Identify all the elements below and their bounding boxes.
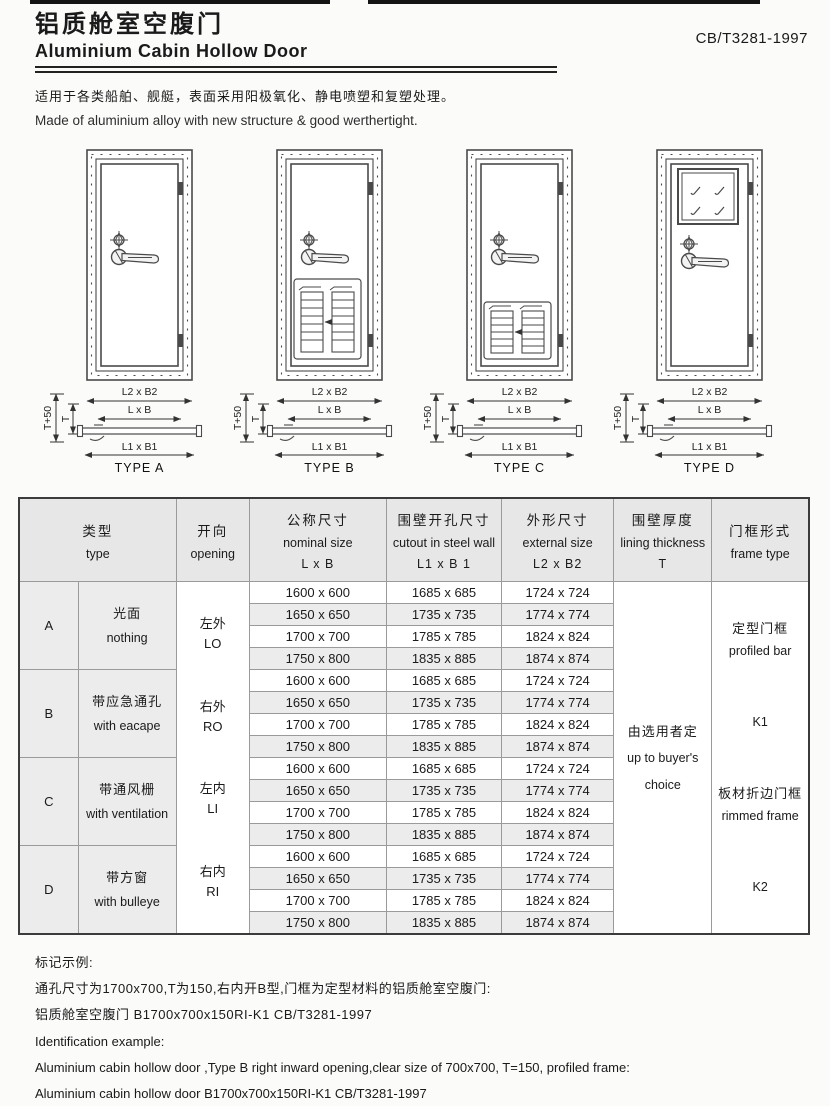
cutout-size: 1835 x 885 [386,912,501,935]
specification-table-wrap: 类型 type 开向 opening 公称尺寸 nominal size L x… [18,497,830,935]
svg-text:T: T [60,416,72,423]
lining-thickness-cell: 由选用者定 up to buyer's choice [614,582,712,935]
svg-text:L x B: L x B [698,404,722,416]
door-outline [277,150,382,380]
dimension-l2b2: L2 x B2 [87,386,192,401]
dimension-l1b1: L1 x B1 [85,441,194,455]
nominal-size: 1600 x 600 [249,582,386,604]
cutout-size: 1685 x 685 [386,846,501,868]
external-size: 1874 x 874 [502,648,614,670]
dimension-lxb: L x B [98,404,181,419]
cutout-size: 1785 x 785 [386,802,501,824]
nominal-size: 1750 x 800 [249,648,386,670]
external-size: 1724 x 724 [502,670,614,692]
example-line1-en: Aluminium cabin hollow door ,Type B righ… [35,1056,830,1080]
dimension-t: T [440,404,459,434]
external-size: 1724 x 724 [502,582,614,604]
hinge-top [558,182,563,195]
external-size: 1874 x 874 [502,824,614,846]
example-line1-zh: 通孔尺寸为1700x700,T为150,右内开B型,门框为定型材料的铝质舱室空腹… [35,977,830,1001]
cutout-size: 1785 x 785 [386,890,501,912]
cutout-size: 1735 x 735 [386,868,501,890]
frame-type-cell: 定型门框profiled bar K1 板材折边门框rimmed frame K… [712,582,809,935]
specification-table: 类型 type 开向 opening 公称尺寸 nominal size L x… [18,497,810,935]
cutout-size: 1735 x 735 [386,780,501,802]
identification-example: 标记示例: 通孔尺寸为1700x700,T为150,右内开B型,门框为定型材料的… [35,951,830,1105]
type-letter-b: B [19,670,78,758]
door-outline [467,150,572,380]
type-desc-b: 带应急通孔with eacape [78,670,176,758]
external-size: 1774 x 774 [502,604,614,626]
dimension-l2b2: L2 x B2 [467,386,572,401]
example-heading-zh: 标记示例: [35,951,830,975]
nominal-size: 1700 x 700 [249,890,386,912]
external-size: 1724 x 724 [502,846,614,868]
dimension-t: T [630,404,649,434]
svg-text:T+50: T+50 [612,406,624,430]
dimension-t: T [60,404,79,434]
svg-text:T+50: T+50 [232,406,244,430]
svg-text:L x B: L x B [318,404,342,416]
figure-label: TYPE A [115,461,165,475]
sill-cross-section [78,425,202,440]
page-header: 铝质舱室空腹门 Aluminium Cabin Hollow Door CB/T… [0,0,830,128]
door-outline [87,150,192,380]
description-zh: 适用于各类船舶、舰艇，表面采用阳极氧化、静电喷塑和复塑处理。 [35,86,808,105]
figure-label: TYPE D [684,461,735,475]
hinge-top [178,182,183,195]
col-header-frame: 门框形式 frame type [712,498,809,582]
type-desc-a: 光面nothing [78,582,176,670]
external-size: 1774 x 774 [502,780,614,802]
col-header-opening: 开向 opening [176,498,249,582]
cutout-size: 1685 x 685 [386,670,501,692]
nominal-size: 1650 x 650 [249,692,386,714]
page-title-en: Aluminium Cabin Hollow Door [35,41,808,62]
external-size: 1824 x 824 [502,626,614,648]
svg-text:L x B: L x B [508,404,532,416]
dimension-l1b1: L1 x B1 [655,441,764,455]
door-figure-type-b: T+50 T L2 x B2 L x B [232,142,422,477]
hinge-bottom [178,334,183,347]
opening-li: 左内LI [177,779,249,819]
svg-text:T+50: T+50 [42,406,54,430]
type-desc-c: 带通风栅with ventilation [78,758,176,846]
nominal-size: 1700 x 700 [249,626,386,648]
opening-cell: 左外LO 右外RO 左内LI 右内RI [176,582,249,935]
type-desc-d: 带方窗with bulleye [78,846,176,935]
col-header-nominal: 公称尺寸 nominal size L x B [249,498,386,582]
svg-text:L2 x B2: L2 x B2 [692,386,728,398]
cutout-size: 1735 x 735 [386,604,501,626]
col-header-lining: 围壁厚度 lining thickness T [614,498,712,582]
door-figure-type-c: T+50 T L2 x B2 L x B [422,142,612,477]
header-row: 类型 type 开向 opening 公称尺寸 nominal size L x… [19,498,809,582]
dimension-lxb: L x B [288,404,371,419]
cutout-size: 1835 x 885 [386,648,501,670]
type-letter-c: C [19,758,78,846]
external-size: 1874 x 874 [502,912,614,935]
nominal-size: 1650 x 650 [249,868,386,890]
sill-cross-section [648,425,772,440]
nominal-size: 1700 x 700 [249,714,386,736]
dimension-l2b2: L2 x B2 [277,386,382,401]
svg-text:L1 x B1: L1 x B1 [692,441,728,453]
hinge-top [368,182,373,195]
table-row: A 光面nothing 左外LO 右外RO 左内LI 右内RI 1600 x 6… [19,582,809,604]
cutout-size: 1785 x 785 [386,626,501,648]
external-size: 1874 x 874 [502,736,614,758]
cutout-size: 1835 x 885 [386,824,501,846]
sill-cross-section [458,425,582,440]
external-size: 1824 x 824 [502,890,614,912]
cutout-size: 1685 x 685 [386,582,501,604]
frame-k2: K2 [712,876,808,899]
svg-text:T+50: T+50 [422,406,434,430]
opening-ro: 右外RO [177,697,249,737]
nominal-size: 1750 x 800 [249,824,386,846]
external-size: 1774 x 774 [502,692,614,714]
sill-cross-section [268,425,392,440]
col-header-type: 类型 type [19,498,176,582]
cutout-size: 1735 x 735 [386,692,501,714]
type-letter-a: A [19,582,78,670]
external-size: 1824 x 824 [502,802,614,824]
external-size: 1824 x 824 [502,714,614,736]
hinge-bottom [748,334,753,347]
dimension-lxb: L x B [668,404,751,419]
svg-text:L1 x B1: L1 x B1 [502,441,538,453]
hinge-bottom [368,334,373,347]
dimension-lxb: L x B [478,404,561,419]
frame-k2-desc: 板材折边门框rimmed frame [712,782,808,828]
col-header-cutout: 围壁开孔尺寸 cutout in steel wall L1 x B 1 [386,498,501,582]
dimension-l2b2: L2 x B2 [657,386,762,401]
svg-text:L2 x B2: L2 x B2 [312,386,348,398]
svg-text:L2 x B2: L2 x B2 [122,386,158,398]
opening-ri: 右内RI [177,862,249,902]
figure-label: TYPE B [304,461,354,475]
cutout-size: 1835 x 885 [386,736,501,758]
example-line2-zh: 铝质舱室空腹门 B1700x700x150RI-K1 CB/T3281-1997 [35,1003,830,1027]
dimension-t: T [250,404,269,434]
standard-number: CB/T3281-1997 [696,30,808,47]
title-underline [35,66,557,73]
nominal-size: 1600 x 600 [249,758,386,780]
svg-text:T: T [440,416,452,423]
door-figure-type-d: T+50 T L2 x B2 L x B [612,142,802,477]
example-line2-en: Aluminium cabin hollow door B1700x700x15… [35,1082,830,1106]
external-size: 1774 x 774 [502,868,614,890]
nominal-size: 1650 x 650 [249,780,386,802]
svg-text:T: T [630,416,642,423]
svg-text:L x B: L x B [128,404,152,416]
svg-text:L2 x B2: L2 x B2 [502,386,538,398]
cutout-size: 1785 x 785 [386,714,501,736]
nominal-size: 1700 x 700 [249,802,386,824]
description-en: Made of aluminium alloy with new structu… [35,113,808,128]
cutout-size: 1685 x 685 [386,758,501,780]
opening-lo: 左外LO [177,614,249,654]
frame-k1: K1 [712,711,808,734]
nominal-size: 1750 x 800 [249,912,386,935]
door-figure-type-a: T+50 T L2 x B2 L x B [42,142,232,477]
external-size: 1724 x 724 [502,758,614,780]
nominal-size: 1750 x 800 [249,736,386,758]
frame-k1-desc: 定型门框profiled bar [712,617,808,663]
svg-text:L1 x B1: L1 x B1 [122,441,158,453]
hinge-top [748,182,753,195]
figure-label: TYPE C [494,461,545,475]
nominal-size: 1600 x 600 [249,670,386,692]
nominal-size: 1650 x 650 [249,604,386,626]
svg-text:T: T [250,416,262,423]
dimension-l1b1: L1 x B1 [275,441,384,455]
col-header-external: 外形尺寸 external size L2 x B2 [502,498,614,582]
page-title-zh: 铝质舱室空腹门 [35,12,808,38]
nominal-size: 1600 x 600 [249,846,386,868]
door-figures: T+50 T L2 x B2 L x B [42,142,830,477]
example-heading-en: Identification example: [35,1030,830,1054]
type-letter-d: D [19,846,78,935]
svg-text:L1 x B1: L1 x B1 [312,441,348,453]
hinge-bottom [558,334,563,347]
dimension-l1b1: L1 x B1 [465,441,574,455]
